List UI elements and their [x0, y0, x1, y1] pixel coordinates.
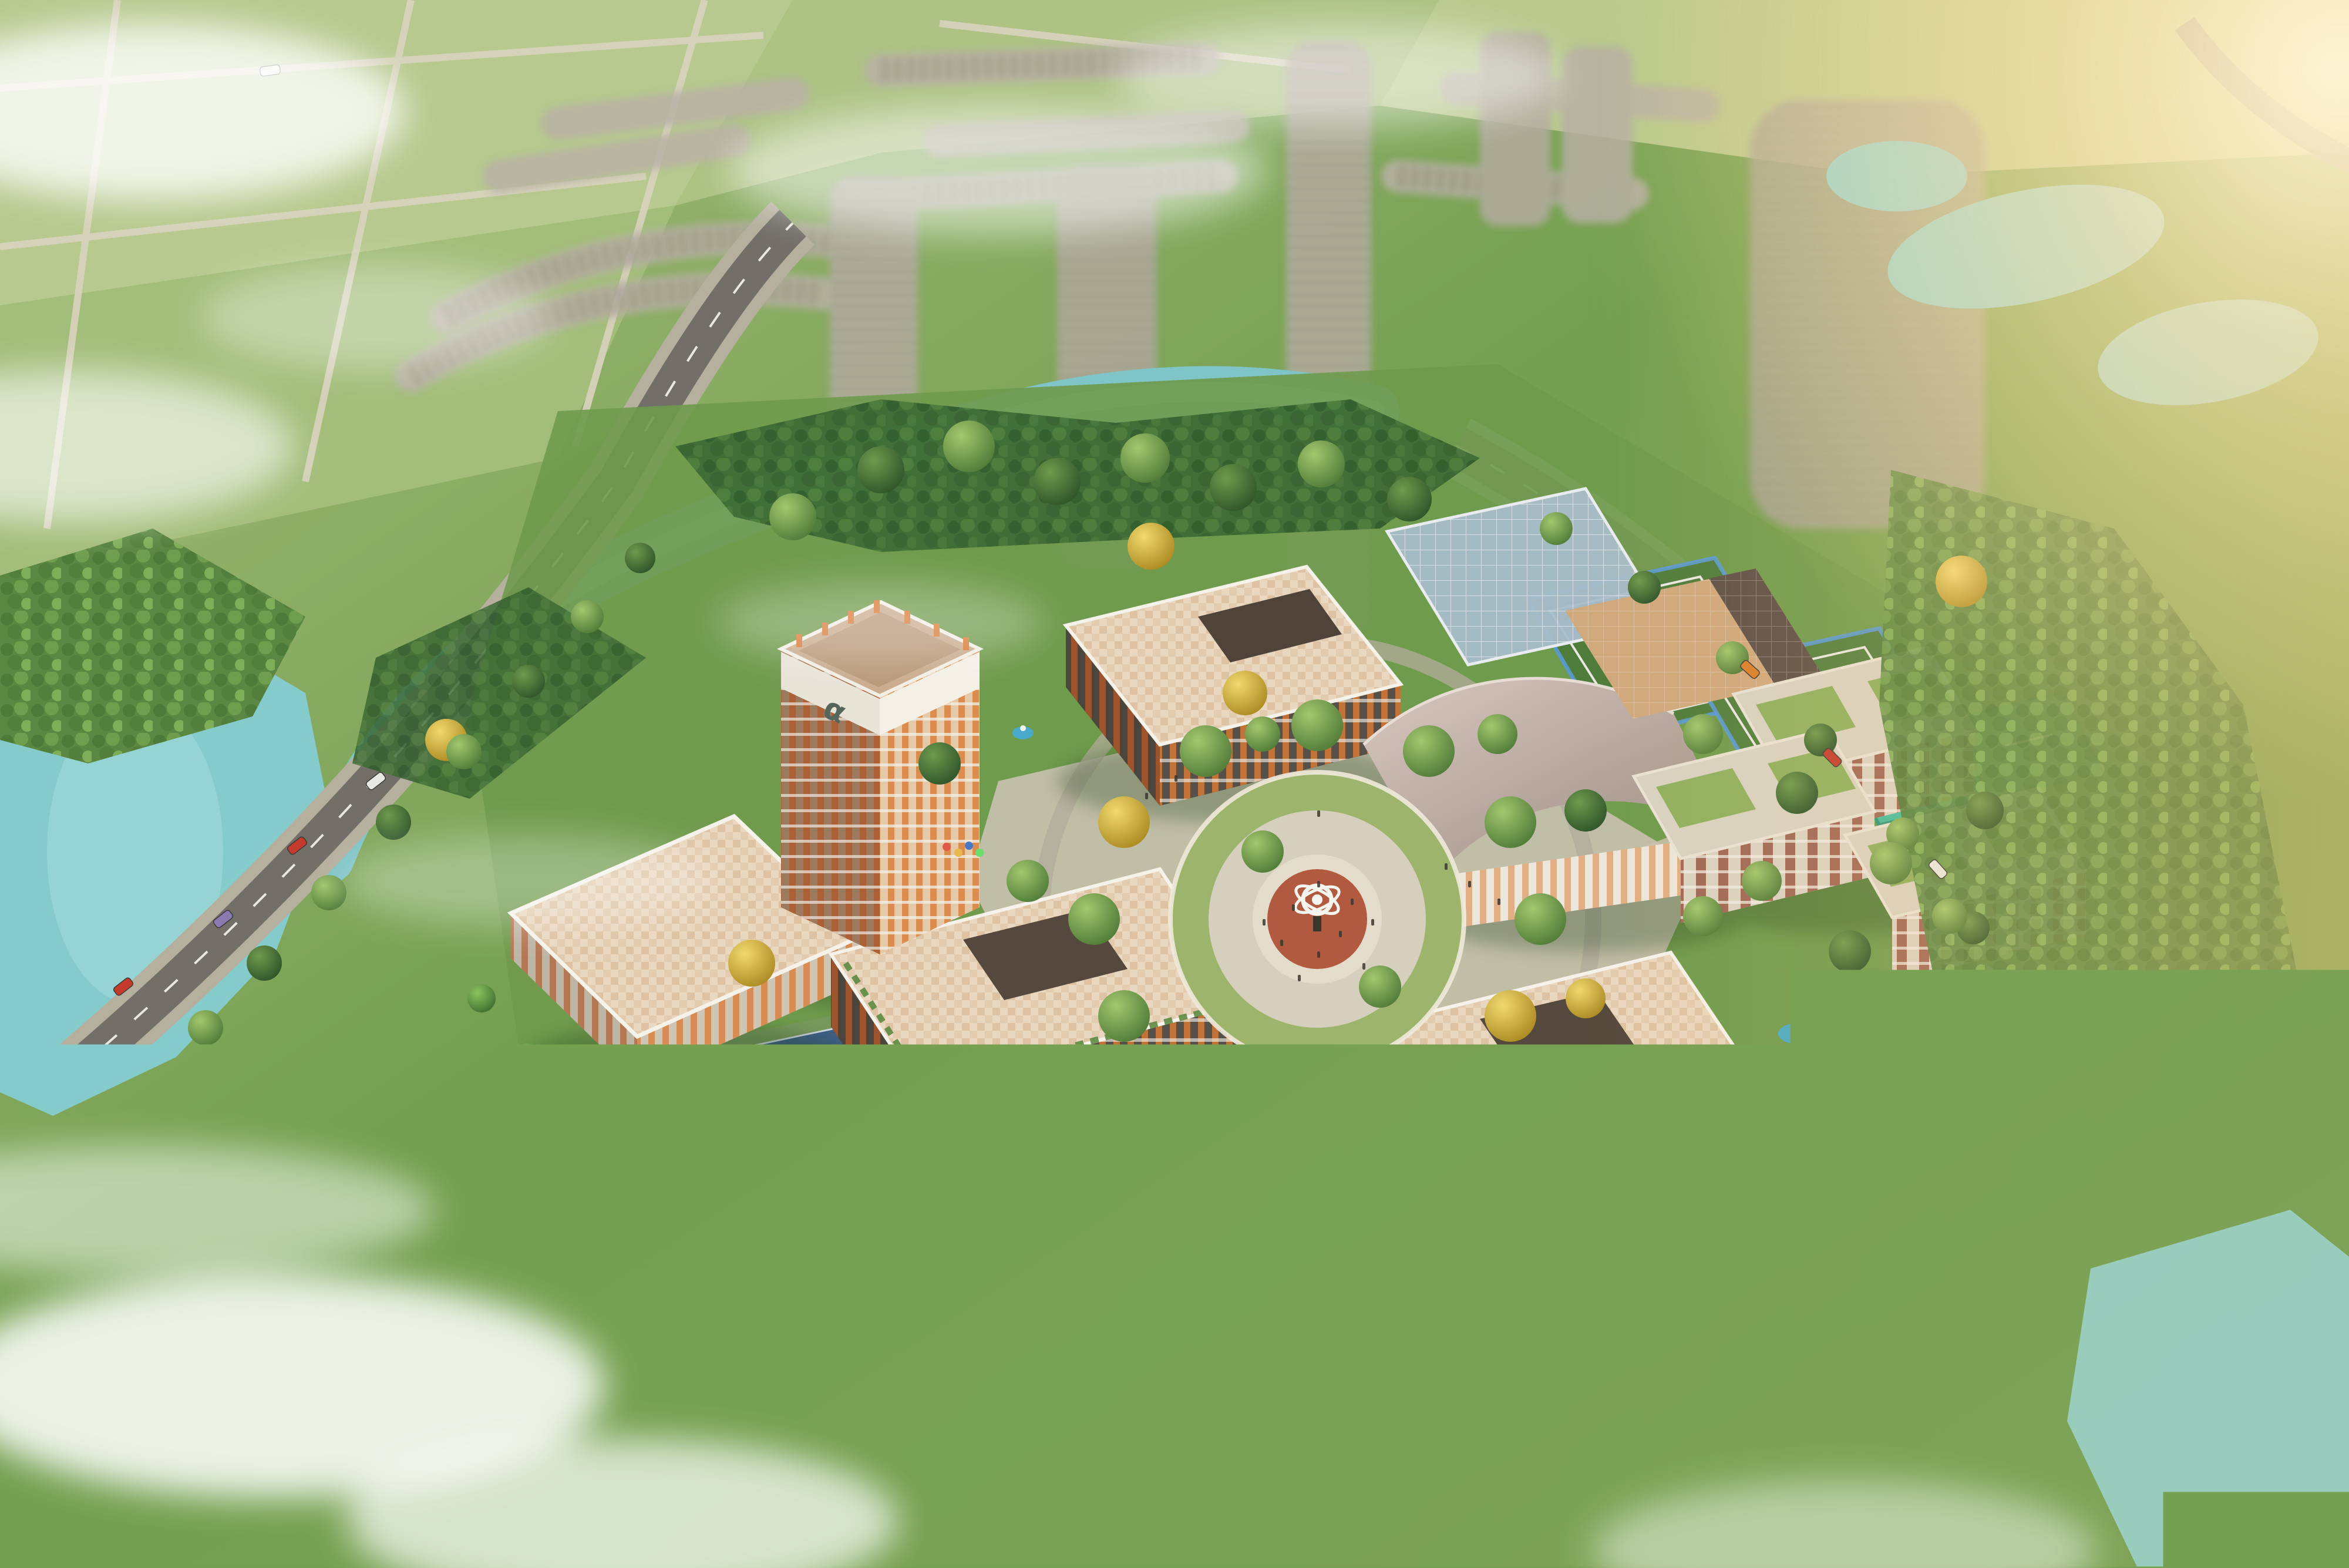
- tree: [446, 734, 482, 769]
- person: [1362, 963, 1365, 970]
- tree: [573, 1072, 601, 1101]
- person: [1421, 1233, 1424, 1240]
- tree: [1063, 1271, 1098, 1307]
- tree: [769, 493, 816, 540]
- tree: [1485, 796, 1536, 848]
- person: [1280, 1198, 1283, 1204]
- tree: [625, 543, 655, 573]
- tree: [631, 1382, 661, 1413]
- person: [1298, 975, 1301, 981]
- flare-circle: [2015, 1076, 2060, 1121]
- tree: [1162, 1188, 1187, 1214]
- tree: [666, 1218, 720, 1272]
- tree: [1297, 1172, 1322, 1198]
- tree: [661, 1090, 689, 1118]
- person: [1263, 919, 1266, 926]
- person: [1317, 951, 1320, 958]
- flare-circle: [2108, 992, 2143, 1028]
- tree: [1419, 1125, 1459, 1165]
- tree: [1515, 893, 1566, 945]
- tree: [1403, 1061, 1455, 1113]
- tree: [1485, 990, 1536, 1042]
- tree: [805, 1313, 840, 1348]
- tree: [376, 805, 411, 840]
- tree: [1098, 990, 1150, 1042]
- person: [1174, 775, 1177, 782]
- tree: [1232, 1179, 1258, 1205]
- tree: [1210, 464, 1257, 511]
- flare-circle: [1714, 1320, 1798, 1405]
- cloud: [1116, 23, 1562, 129]
- tree: [1120, 433, 1170, 483]
- gate-booth: [1429, 1215, 1461, 1254]
- person: [1280, 940, 1283, 946]
- tree: [1387, 477, 1432, 521]
- car: [1252, 1254, 1273, 1266]
- render-canvas: α FPT SCHOOL HAI PHONG: [0, 0, 2349, 1568]
- person: [1145, 793, 1148, 799]
- tree: [728, 940, 775, 987]
- car: [1381, 1257, 1402, 1268]
- tree: [1291, 699, 1343, 751]
- person: [1371, 919, 1374, 926]
- person: [1468, 881, 1471, 887]
- cloud: [716, 581, 1045, 664]
- tree: [512, 665, 545, 698]
- tree: [1540, 512, 1573, 545]
- person: [1292, 904, 1295, 911]
- tree: [1241, 830, 1284, 873]
- tree: [934, 1297, 969, 1332]
- flare-circle: [1907, 1150, 1980, 1223]
- tree: [1034, 458, 1081, 505]
- person: [1445, 863, 1448, 870]
- tree: [1394, 1312, 1425, 1342]
- tree: [571, 600, 604, 633]
- tree: [1068, 893, 1120, 945]
- tree: [1128, 523, 1174, 570]
- tree: [1367, 1182, 1393, 1208]
- tree: [247, 945, 282, 981]
- person: [1362, 1216, 1365, 1222]
- person: [1497, 899, 1500, 905]
- tree: [1180, 725, 1231, 777]
- tree: [983, 1341, 1014, 1372]
- tree: [1180, 1061, 1231, 1113]
- tree: [1098, 796, 1150, 848]
- cloud: [728, 106, 1268, 235]
- person: [1321, 1227, 1324, 1234]
- aerial-render: α FPT SCHOOL HAI PHONG: [0, 0, 2349, 1568]
- tree: [467, 984, 496, 1012]
- person: [1317, 810, 1320, 817]
- tree: [1298, 440, 1345, 487]
- tree: [1291, 1087, 1343, 1139]
- tree: [1478, 714, 1517, 754]
- tree: [1223, 671, 1267, 715]
- cloud: [341, 834, 716, 928]
- tree: [749, 1102, 778, 1130]
- person: [1339, 931, 1342, 937]
- tree: [1403, 725, 1455, 777]
- tree: [1007, 860, 1049, 902]
- tree: [1245, 716, 1280, 752]
- tree: [943, 420, 995, 472]
- tree: [514, 1043, 543, 1071]
- flare-circle: [1825, 1250, 1875, 1299]
- person: [1351, 899, 1354, 905]
- person: [1221, 1222, 1224, 1228]
- tree: [188, 1010, 223, 1045]
- person: [1317, 881, 1320, 887]
- tree: [857, 446, 904, 493]
- flare-circle: [1640, 1416, 1696, 1473]
- tree: [918, 742, 961, 785]
- tree: [1359, 965, 1401, 1008]
- cloud: [200, 264, 552, 370]
